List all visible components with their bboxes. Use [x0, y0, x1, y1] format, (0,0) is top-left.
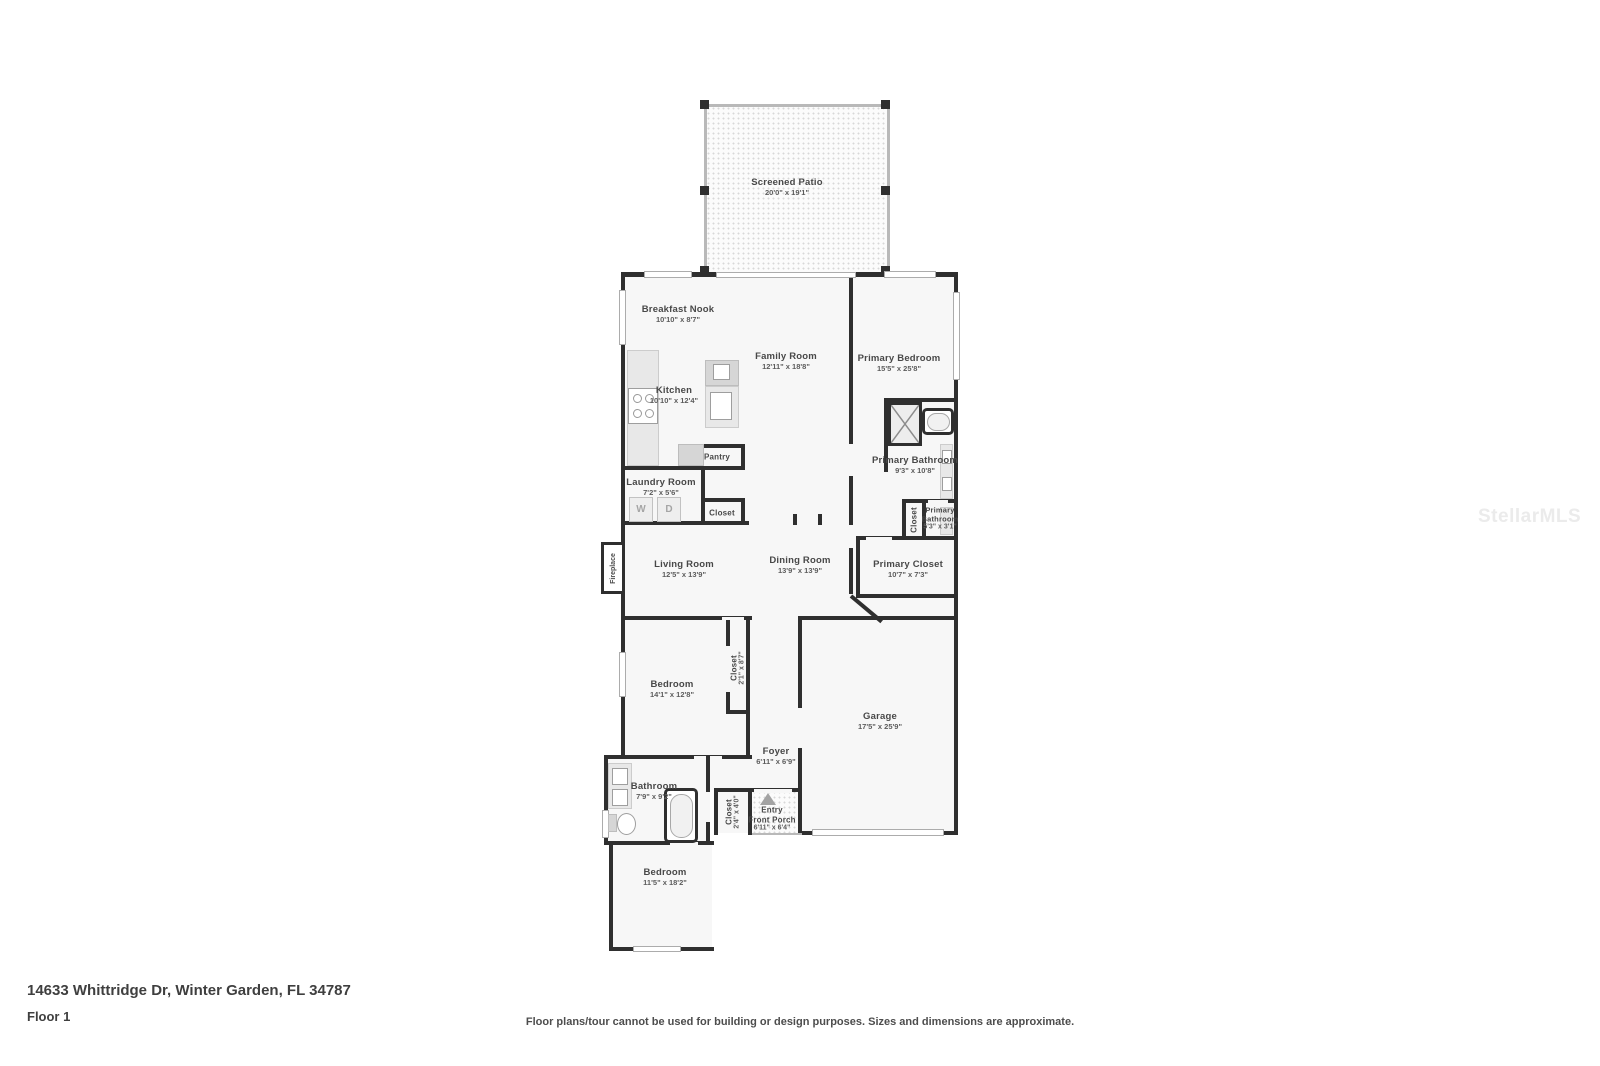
room-dims: 5'3" x 3'1" [916, 524, 964, 532]
porch-edge [752, 833, 802, 835]
burner-icon [633, 394, 642, 403]
washer-icon: W [629, 497, 653, 522]
room-name: Front Porch [748, 815, 796, 824]
wall-family-primary-lower [849, 476, 853, 525]
wall-pantry-right [741, 444, 745, 470]
patio-slider [716, 272, 856, 278]
room-dims: 10'10" x 12'4" [650, 397, 698, 406]
burner-icon [645, 409, 654, 418]
bedroom3-floor [611, 843, 712, 949]
room-label-bedroom-2-closet: Closet 2'1" x 8'7" [729, 651, 746, 684]
room-name: Closet [709, 508, 735, 517]
toilet-bowl-icon [617, 813, 636, 835]
wall-kitchen-laundry [621, 466, 745, 470]
room-label-bedroom-2: Bedroom 14'1" x 12'8" [650, 680, 694, 700]
room-dims: 10'7" x 7'3" [873, 571, 943, 580]
room-label-breakfast-nook: Breakfast Nook 10'10" x 8'7" [642, 305, 715, 325]
wall-bedroom2-bottom [604, 755, 752, 759]
room-dims: 9'3" x 10'8" [872, 467, 958, 476]
primary-bathtub-basin [927, 413, 950, 431]
wall-bedroom2-right [746, 616, 750, 759]
window-breakfast-left [619, 290, 626, 345]
room-dims: 20'0" x 19'1" [751, 189, 822, 198]
room-dims: 7'2" x 5'6" [626, 489, 695, 498]
room-dims: 6'11" x 6'9" [756, 758, 795, 767]
room-dims: 12'5" x 13'9" [654, 571, 714, 580]
room-label-primary-water-closet: Primary Bathroom 5'3" x 3'1" [916, 506, 964, 531]
room-dims: 7'9" x 9'2" [631, 793, 677, 802]
room-label-bedroom-3: Bedroom 11'5" x 18'2" [643, 868, 687, 888]
patio-post [700, 186, 709, 195]
room-label-pantry: Pantry [704, 452, 730, 461]
room-dims: 2'1" x 8'7" [739, 651, 747, 684]
room-label-front-porch: Front Porch 6'11" x 6'4" [748, 815, 796, 832]
room-label-foyer: Foyer 6'11" x 6'9" [756, 747, 795, 767]
wall-family-primary-upper [849, 272, 853, 444]
room-label-entry: Entry [761, 805, 782, 814]
wall-porch-closet-left [714, 788, 718, 835]
room-label-laundry-room: Laundry Room 7'2" x 5'6" [626, 478, 695, 498]
wall-dining-right [849, 548, 853, 594]
property-address: 14633 Whittridge Dr, Winter Garden, FL 3… [27, 982, 351, 999]
room-label-kitchen: Kitchen 10'10" x 12'4" [650, 386, 698, 406]
wall-primary-closet-bottom [856, 594, 955, 598]
room-dims: 10'10" x 8'7" [642, 316, 715, 325]
dryer-icon: D [657, 497, 681, 522]
microwave-icon [713, 364, 730, 380]
room-name: Closet [729, 651, 738, 684]
room-label-screened-patio: Screened Patio 20'0" x 19'1" [751, 178, 822, 198]
wall-laundry-right [701, 466, 705, 525]
room-label-primary-closet: Primary Closet 10'7" x 7'3" [873, 560, 943, 580]
room-dims: 12'11" x 18'8" [755, 363, 817, 372]
island-sink-icon [710, 392, 732, 420]
patio-screen-top [704, 104, 890, 107]
room-label-garage: Garage 17'5" x 25'9" [858, 712, 902, 732]
dryer-label: D [665, 504, 672, 515]
room-label-family-room: Family Room 12'11" x 18'8" [755, 352, 817, 372]
room-dims: 6'11" x 6'4" [748, 825, 796, 833]
wall-bedroom2-closet-bottom [726, 710, 750, 714]
primary-sink-icon [942, 477, 952, 491]
window-bedroom3-bottom [633, 946, 681, 952]
wall-left-bedroom3 [609, 841, 613, 951]
window-bedroom2-left [619, 652, 626, 697]
door-primary-closet [866, 537, 892, 541]
window-breakfast-top [644, 271, 692, 278]
room-label-primary-bathroom: Primary Bathroom 9'3" x 10'8" [872, 456, 958, 476]
wall-jamb [818, 514, 822, 525]
room-label-porch-closet: Closet 2'4" x 4'0" [724, 795, 741, 828]
room-name: Primary Bathroom [916, 506, 964, 523]
patio-post [881, 186, 890, 195]
room-label-primary-bedroom: Primary Bedroom 15'5" x 25'8" [858, 354, 941, 374]
door-wc [928, 500, 948, 504]
fireplace-icon: Fireplace [601, 542, 625, 594]
fireplace-label: Fireplace [610, 553, 617, 584]
stellar-mls-watermark: StellarMLS [1478, 506, 1581, 528]
floor-plan-page: W D Fireplace Screened Patio 20'0" x 19'… [0, 0, 1600, 1066]
room-label-bathroom-2: Bathroom 7'9" x 9'2" [631, 782, 677, 802]
room-name: Closet [724, 795, 733, 828]
shower-icon [888, 402, 922, 446]
room-dims: 11'5" x 18'2" [643, 879, 687, 888]
washer-label: W [636, 504, 645, 515]
wall-wc-closet-left [902, 499, 906, 540]
garage-door [812, 829, 944, 836]
room-name: Pantry [704, 452, 730, 461]
room-dims: 2'4" x 4'0" [734, 795, 742, 828]
burner-icon [633, 409, 642, 418]
door-bathroom2 [706, 792, 710, 822]
room-dims: 13'9" x 13'9" [769, 567, 830, 576]
wall-primary-closet-left [856, 536, 860, 598]
patio-post [700, 100, 709, 109]
room-dims: 14'1" x 12'8" [650, 691, 694, 700]
room-dims: 17'5" x 25'9" [858, 723, 902, 732]
bathroom2-sink-icon [612, 768, 628, 785]
wall-garage-left-upper [798, 616, 802, 708]
shower-x [891, 405, 919, 443]
room-label-living-room: Living Room 12'5" x 13'9" [654, 560, 714, 580]
wall-jamb [793, 514, 797, 525]
room-label-hall-closet: Closet [709, 508, 735, 517]
toilet-tank-icon [608, 814, 617, 832]
hall-floor [710, 757, 750, 790]
window-primary-top [884, 271, 936, 278]
room-label-dining-room: Dining Room 13'9" x 13'9" [769, 556, 830, 576]
room-dims: 15'5" x 25'8" [858, 365, 941, 374]
room-name: Entry [761, 805, 782, 814]
window-primary-right [953, 292, 960, 380]
patio-post [881, 100, 890, 109]
wall-hall-closet-top [703, 498, 745, 502]
disclaimer-text: Floor plans/tour cannot be used for buil… [0, 1016, 1600, 1028]
entry-arrow-icon [760, 793, 776, 805]
bathroom2-sink-icon [612, 789, 628, 806]
refrigerator-icon [678, 444, 704, 466]
